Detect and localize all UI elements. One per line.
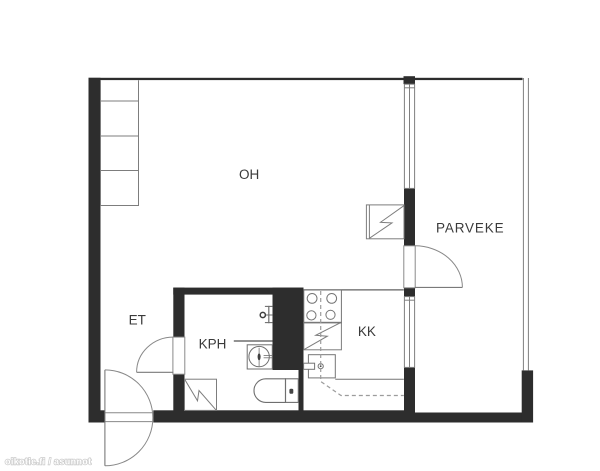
svg-text:PARVEKE: PARVEKE xyxy=(436,221,504,236)
svg-text:OH: OH xyxy=(239,167,259,182)
svg-text:KK: KK xyxy=(358,324,376,339)
svg-text:ET: ET xyxy=(129,313,146,328)
svg-text:oikotie.fi / asunnot: oikotie.fi / asunnot xyxy=(5,456,92,466)
svg-text:KPH: KPH xyxy=(199,336,227,351)
